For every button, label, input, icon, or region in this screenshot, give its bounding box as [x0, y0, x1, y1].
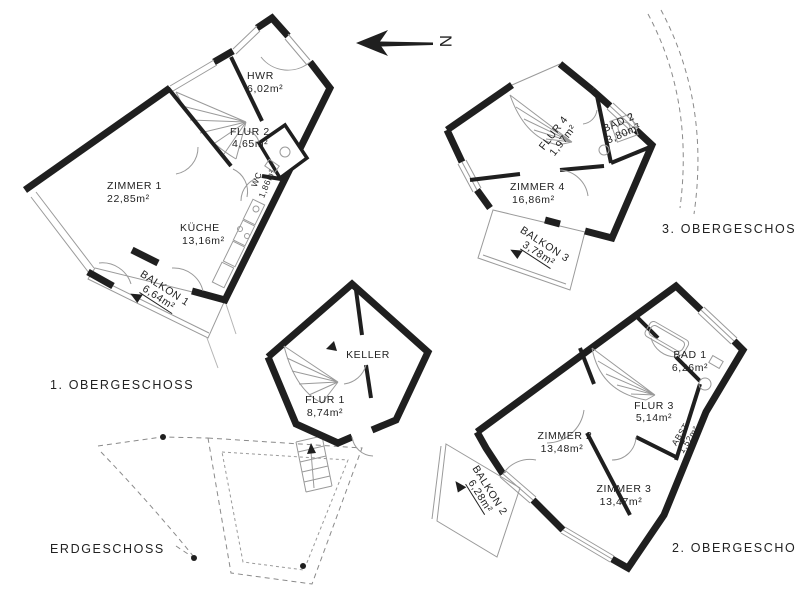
- room-area-hwr: 6,02m²: [247, 83, 283, 95]
- floor-label-erdgeschoss: ERDGESCHOSS: [50, 542, 165, 556]
- floor-label-og2: 2. OBERGESCHOSS: [672, 541, 796, 555]
- room-area-bad1: 6,26m²: [672, 362, 708, 374]
- room-label-kueche: KÜCHE: [180, 222, 220, 234]
- room-area-flur2: 4,65m²: [232, 138, 268, 150]
- room-label-zimmer3: ZIMMER 3: [597, 483, 652, 495]
- room-area-zimmer1: 22,85m²: [107, 193, 150, 205]
- room-area-zimmer2: 13,48m²: [541, 443, 584, 455]
- room-area-kueche: 13,16m²: [182, 235, 225, 247]
- room-area-zimmer3: 13,47m²: [600, 496, 643, 508]
- north-arrow: N: [356, 30, 455, 56]
- room-label-bad1: BAD 1: [673, 349, 706, 361]
- room-label-flur1: FLUR 1: [305, 394, 345, 406]
- room-label-hwr: HWR: [247, 70, 274, 82]
- floor-plan-og3: FLUR 4 1,97m² BAD 2 3,80m² ZIMMER 4 16,8…: [447, 10, 698, 290]
- floor-plan-og2: BAD 1 6,26m² FLUR 3 5,14m² ZIMMER 2 13,4…: [432, 286, 743, 568]
- room-label-keller: KELLER: [346, 349, 390, 361]
- north-label: N: [436, 35, 455, 48]
- floor-plan-erdgeschoss: KELLER FLUR 1 8,74m²: [268, 284, 428, 456]
- floor-plan-og1: HWR 6,02m² FLUR 2 4,65m² WC 1,86m² ZIMME…: [25, 18, 330, 368]
- room-area-zimmer4: 16,86m²: [512, 194, 555, 206]
- room-label-zimmer2: ZIMMER 2: [538, 430, 593, 442]
- room-area-flur3: 5,14m²: [636, 412, 672, 424]
- room-label-zimmer1: ZIMMER 1: [107, 180, 162, 192]
- room-label-flur2: FLUR 2: [230, 126, 270, 138]
- room-label-zimmer4: ZIMMER 4: [510, 181, 565, 193]
- room-area-flur1: 8,74m²: [307, 407, 343, 419]
- room-label-flur3: FLUR 3: [634, 400, 674, 412]
- floor-label-og1: 1. OBERGESCHOSS: [50, 378, 194, 392]
- room-label-balkon3: BALKON 3 3,78m²: [506, 224, 571, 282]
- floor-plan-sheet: N: [0, 0, 796, 596]
- floor-label-og3: 3. OBERGESCHOSS: [662, 222, 796, 236]
- site-outline-erdgeschoss: [98, 434, 362, 584]
- floor-plans-canvas: N: [0, 0, 796, 596]
